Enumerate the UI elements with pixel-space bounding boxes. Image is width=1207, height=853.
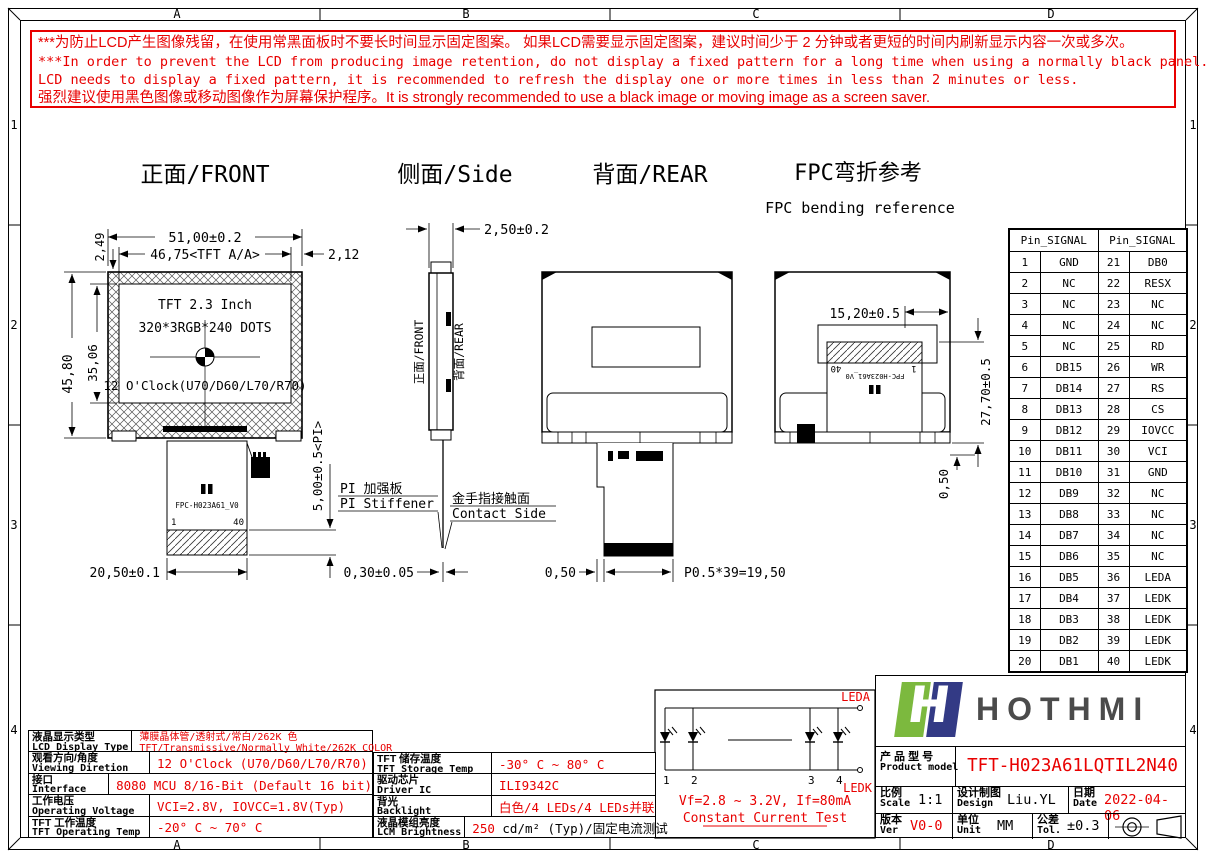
spec-label: 背光Backlight [374,796,492,816]
frame-col-d-top: D [1044,8,1058,20]
spec-value: 白色/4 LEDs/4 LEDs并联 [492,796,655,816]
pin-cell: 25 [1098,336,1129,357]
title-block: H HOTHMI 产 品 型 号 Product model TFT-H023A… [875,675,1186,838]
pin-cell: WR [1129,357,1187,378]
pin-cell: 16 [1009,567,1040,588]
pin-cell: 40 [1098,651,1129,673]
frame-col-c-top: C [749,8,763,20]
pin-cell: DB10 [1040,462,1098,483]
frame-col-b-top: B [459,8,473,20]
spec-value-line: -30° C ~ 80° C [499,757,655,772]
pin-cell: NC [1040,336,1098,357]
pin-cell: 3 [1009,294,1040,315]
pin-cell: DB14 [1040,378,1098,399]
pin-cell: GND [1129,462,1187,483]
pin-cell: DB12 [1040,420,1098,441]
pin-cell: NC [1129,483,1187,504]
pin-row: 4NC24NC [1009,315,1187,336]
spec-label: 接口Interface [29,774,109,794]
pin-cell: 33 [1098,504,1129,525]
spec-value: 薄膜晶体管/透射式/常白/262K 色TFT/Transmissive/Norm… [132,731,392,751]
frame-row-2-right: 2 [1186,319,1200,331]
spec-row: TFT 储存温度TFT Storage Temp-30° C ~ 80° C [374,753,655,773]
frame-col-b-bottom: B [459,839,473,851]
pin-cell: 15 [1009,546,1040,567]
pin-cell: 10 [1009,441,1040,462]
pin-cell: 13 [1009,504,1040,525]
pin-cell: 23 [1098,294,1129,315]
pin-cell: DB3 [1040,609,1098,630]
product-model-value-cell: TFT-H023A61LQTIL2N40 [956,747,1185,786]
frame-row-4-left: 4 [7,724,21,736]
spec-label: 工作电压Operating Voltage [29,795,150,815]
spec-value-line: 8080 MCU 8/16-Bit (Default 16 bit) [116,778,372,793]
spec-row: 驱动芯片Driver ICILI9342C [374,773,655,794]
pin-row: 12DB932NC [1009,483,1187,504]
pin-cell: DB1 [1040,651,1098,673]
spec-row: 观看方向/角度Viewing Diretion12 O'Clock (U70/D… [29,751,372,772]
spec-value-segment: 12 O'Clock (U70/D60/L70/R70) [157,756,368,771]
spec-label: TFT 工作温度TFT Operating Temp [29,817,150,837]
pin-cell: 21 [1098,252,1129,273]
hothmi-logo-icon: H [894,682,968,737]
design-value: Liu.YL [1007,792,1056,808]
pin-cell: 35 [1098,546,1129,567]
ver-value: V0-0 [910,818,943,834]
pin-cell: DB2 [1040,630,1098,651]
pin-row: 18DB338LEDK [1009,609,1187,630]
pin-cell: NC [1129,546,1187,567]
pin-cell: RD [1129,336,1187,357]
pin-cell: IOVCC [1129,420,1187,441]
pin-cell: 20 [1009,651,1040,673]
pin-cell: DB4 [1040,588,1098,609]
spec-value: ILI9342C [492,774,655,794]
projection-symbol-cell [1109,814,1185,839]
pin-row: 7DB1427RS [1009,378,1187,399]
pin-row: 14DB734NC [1009,525,1187,546]
spec-value-line: 白色/4 LEDs/4 LEDs并联 [499,797,655,816]
frame-col-a-bottom: A [170,839,184,851]
pin-cell: 19 [1009,630,1040,651]
frame-row-1-right: 1 [1186,119,1200,131]
spec-value-segment: 薄膜晶体管/透射式/常白/262K 色 [139,732,297,743]
spec-value: 250 cd/m² (Typ)/固定电流测试 [465,817,667,837]
pin-cell: 29 [1098,420,1129,441]
spec-label: 驱动芯片Driver IC [374,774,492,794]
pin-cell: LEDK [1129,651,1187,673]
pin-row: 10DB1130VCI [1009,441,1187,462]
product-model-row: 产 品 型 号 Product model TFT-H023A61LQTIL2N… [876,746,1185,786]
warning-line-3: LCD needs to display a fixed pattern, it… [38,71,1168,89]
spec-row: 背光Backlight白色/4 LEDs/4 LEDs并联 [374,795,655,816]
pin-cell: 28 [1098,399,1129,420]
pin-cell: RS [1129,378,1187,399]
pin-cell: NC [1129,315,1187,336]
pin-row: 11DB1031GND [1009,462,1187,483]
brand-area: H HOTHMI [876,676,1185,746]
warning-line-4: 强烈建议使用黑色图像或移动图像作为屏幕保护程序。It is strongly r… [38,89,1168,108]
spec-table-right: TFT 储存温度TFT Storage Temp-30° C ~ 80° C驱动… [373,752,656,838]
pin-row: 20DB140LEDK [1009,651,1187,673]
pin-cell: 8 [1009,399,1040,420]
pin-row: 1GND21DB0 [1009,252,1187,273]
frame-row-2-left: 2 [7,319,21,331]
projection-angle-icon [1113,815,1187,839]
spec-value-segment: cd/m² (Typ)/固定电流测试 [495,821,668,836]
spec-label: 液晶模组亮度LCM Brightness [374,817,465,837]
pin-cell: 4 [1009,315,1040,336]
pin-cell: LEDK [1129,630,1187,651]
product-label-en: Product model [880,763,955,774]
pin-table-body: 1GND21DB02NC22RESX3NC23NC4NC24NC5NC25RD6… [1009,252,1187,673]
frame-row-3-right: 3 [1186,519,1200,531]
pin-row: 3NC23NC [1009,294,1187,315]
scale-value: 1:1 [918,792,942,808]
spec-value-line: -20° C ~ 70° C [157,820,372,835]
pin-cell: 31 [1098,462,1129,483]
spec-value-line: ILI9342C [499,778,655,793]
scale-cell: 比例 Scale 1:1 [876,787,953,813]
retention-warning-box: ***为防止LCD产生图像残留，在使用常黑面板时不要长时间显示固定图案。 如果L… [30,30,1176,108]
spec-value-segment: ILI9342C [499,778,559,793]
pin-row: 16DB536LEDA [1009,567,1187,588]
pin-header-left: Pin_SIGNAL [1009,229,1098,252]
spec-label-zh: 液晶显示类型 [32,732,128,743]
pin-cell: GND [1040,252,1098,273]
frame-col-d-bottom: D [1044,839,1058,851]
pin-cell: 37 [1098,588,1129,609]
tol-cell: 公差 Tol. ±0.3 [1033,814,1109,839]
spec-value: VCI=2.8V, IOVCC=1.8V(Typ) [150,795,372,815]
pin-cell: NC [1129,294,1187,315]
pin-cell: 27 [1098,378,1129,399]
spec-label-en: TFT Operating Temp [32,828,146,838]
ver-unit-tol-row: 版本 Ver V0-0 单位 Unit MM 公差 Tol. ±0.3 [876,813,1185,839]
pin-cell: LEDK [1129,588,1187,609]
pin-cell: LEDK [1129,609,1187,630]
design-cell: 设计制图 Design Liu.YL [953,787,1069,813]
pin-cell: 26 [1098,357,1129,378]
pin-cell: 6 [1009,357,1040,378]
pin-cell: NC [1129,525,1187,546]
spec-table-left: 液晶显示类型LCD Display Type薄膜晶体管/透射式/常白/262K … [28,730,373,838]
pin-row: 2NC22RESX [1009,273,1187,294]
spec-value-segment: 白色/4 LEDs/4 LEDs并联 [499,800,654,815]
pin-table-header: Pin_SIGNAL Pin_SIGNAL [1009,229,1187,252]
spec-value-segment: -20° C ~ 70° C [157,820,262,835]
pin-cell: 9 [1009,420,1040,441]
pin-header-right: Pin_SIGNAL [1098,229,1187,252]
pin-cell: 36 [1098,567,1129,588]
pin-cell: 5 [1009,336,1040,357]
unit-cell: 单位 Unit MM [953,814,1033,839]
warning-line-2: ***In order to prevent the LCD from prod… [38,53,1168,71]
tol-value: ±0.3 [1067,818,1100,834]
pin-cell: DB13 [1040,399,1098,420]
pin-cell: NC [1129,504,1187,525]
pin-cell: VCI [1129,441,1187,462]
pin-cell: DB15 [1040,357,1098,378]
pin-cell: 30 [1098,441,1129,462]
pin-cell: DB9 [1040,483,1098,504]
spec-row: 接口Interface8080 MCU 8/16-Bit (Default 16… [29,773,372,794]
pin-cell: 14 [1009,525,1040,546]
spec-value-segment: VCI=2.8V, IOVCC=1.8V(Typ) [157,799,345,814]
pin-row: 19DB239LEDK [1009,630,1187,651]
pin-cell: 32 [1098,483,1129,504]
spec-label-zh: TFT 储存温度 [377,754,488,765]
spec-label: 液晶显示类型LCD Display Type [29,731,132,751]
logo-h-letter: H [895,676,964,734]
pin-signal-table: Pin_SIGNAL Pin_SIGNAL 1GND21DB02NC22RESX… [1008,228,1188,673]
pin-cell: 38 [1098,609,1129,630]
brand-name: HOTHMI [976,691,1150,728]
spec-value-segment: 250 [472,821,495,836]
spec-row: 液晶模组亮度LCM Brightness250 cd/m² (Typ)/固定电流… [374,816,655,837]
pin-cell: DB5 [1040,567,1098,588]
spec-value: -30° C ~ 80° C [492,753,655,773]
pin-cell: 39 [1098,630,1129,651]
unit-label-en: Unit [957,826,1032,837]
pin-cell: 22 [1098,273,1129,294]
spec-row: 液晶显示类型LCD Display Type薄膜晶体管/透射式/常白/262K … [29,731,372,751]
date-cell: 日期 Date 2022-04-06 [1069,787,1185,813]
spec-value-line: 250 cd/m² (Typ)/固定电流测试 [472,818,667,837]
pin-cell: NC [1040,315,1098,336]
spec-row: 工作电压Operating VoltageVCI=2.8V, IOVCC=1.8… [29,794,372,815]
pin-cell: 18 [1009,609,1040,630]
frame-row-1-left: 1 [7,119,21,131]
pin-row: 13DB833NC [1009,504,1187,525]
pin-cell: RESX [1129,273,1187,294]
pin-row: 17DB437LEDK [1009,588,1187,609]
frame-col-c-bottom: C [749,839,763,851]
spec-row: TFT 工作温度TFT Operating Temp-20° C ~ 70° C [29,816,372,837]
pin-row: 8DB1328CS [1009,399,1187,420]
spec-value-line: VCI=2.8V, IOVCC=1.8V(Typ) [157,799,372,814]
spec-label: TFT 储存温度TFT Storage Temp [374,753,492,773]
spec-value: -20° C ~ 70° C [150,817,372,837]
pin-cell: DB0 [1129,252,1187,273]
pin-cell: 34 [1098,525,1129,546]
pin-cell: 11 [1009,462,1040,483]
pin-cell: 7 [1009,378,1040,399]
pin-cell: 1 [1009,252,1040,273]
spec-label-en: LCM Brightness [377,828,461,838]
pin-row: 9DB1229IOVCC [1009,420,1187,441]
pin-cell: CS [1129,399,1187,420]
frame-row-3-left: 3 [7,519,21,531]
spec-value-segment: -30° C ~ 80° C [499,757,604,772]
ver-cell: 版本 Ver V0-0 [876,814,953,839]
pin-cell: 2 [1009,273,1040,294]
pin-cell: DB11 [1040,441,1098,462]
unit-value: MM [997,818,1013,834]
pin-cell: DB7 [1040,525,1098,546]
spec-value: 12 O'Clock (U70/D60/L70/R70) [150,752,372,772]
pin-row: 5NC25RD [1009,336,1187,357]
frame-col-a-top: A [170,8,184,20]
warning-line-1: ***为防止LCD产生图像残留，在使用常黑面板时不要长时间显示固定图案。 如果L… [38,34,1168,53]
pin-cell: 24 [1098,315,1129,336]
pin-cell: 12 [1009,483,1040,504]
pin-row: 6DB1526WR [1009,357,1187,378]
pin-cell: DB6 [1040,546,1098,567]
frame-row-4-right: 4 [1186,724,1200,736]
pin-cell: NC [1040,273,1098,294]
pin-cell: 17 [1009,588,1040,609]
product-model-value: TFT-H023A61LQTIL2N40 [960,756,1185,776]
pin-cell: NC [1040,294,1098,315]
scale-design-date-row: 比例 Scale 1:1 设计制图 Design Liu.YL 日期 Date … [876,786,1185,813]
spec-label: 观看方向/角度Viewing Diretion [29,752,150,772]
product-model-label: 产 品 型 号 Product model [876,747,956,786]
spec-value-line: 12 O'Clock (U70/D60/L70/R70) [157,756,372,771]
pin-cell: DB8 [1040,504,1098,525]
spec-value-segment: 8080 MCU 8/16-Bit (Default 16 bit) [116,778,372,793]
spec-value: 8080 MCU 8/16-Bit (Default 16 bit) [109,774,372,794]
pin-row: 15DB635NC [1009,546,1187,567]
pin-cell: LEDA [1129,567,1187,588]
